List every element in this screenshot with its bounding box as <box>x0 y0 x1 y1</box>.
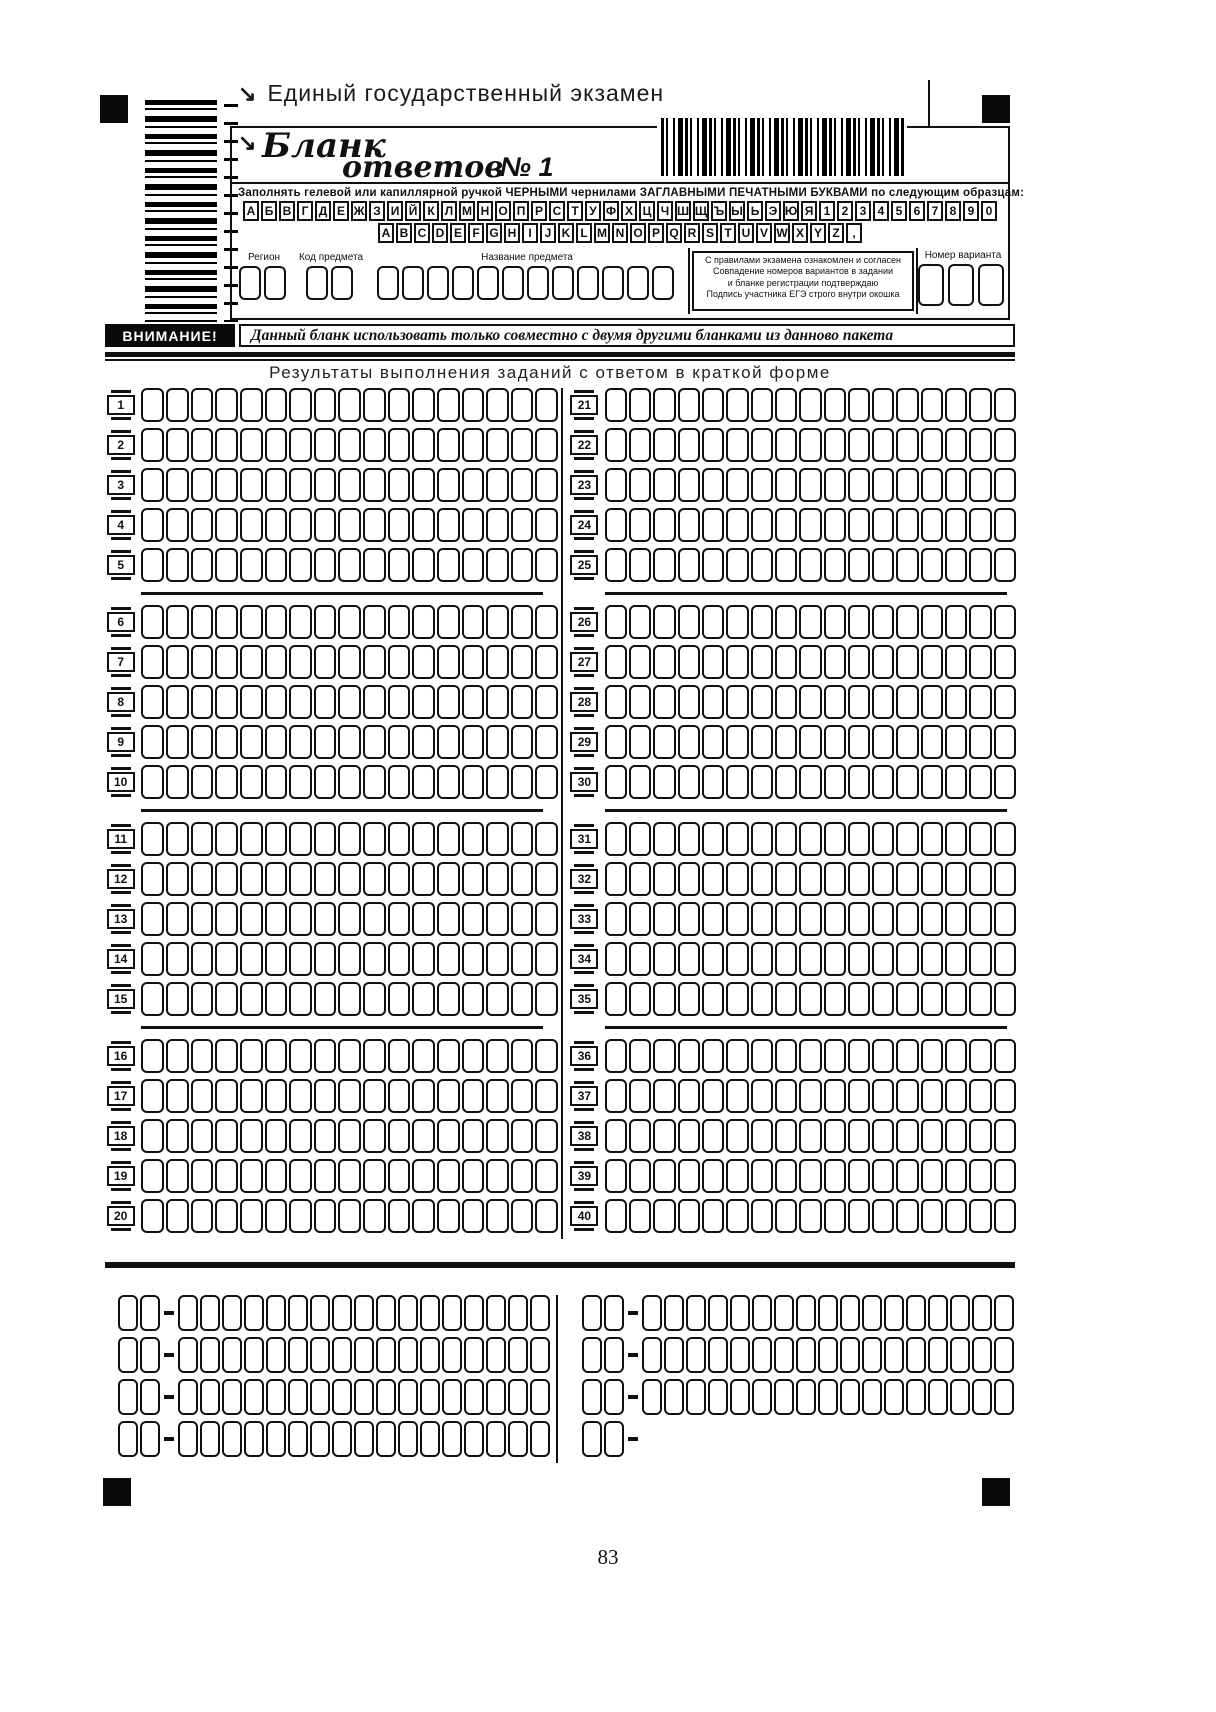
answer-cell[interactable] <box>678 765 700 799</box>
answer-cell[interactable] <box>535 1079 558 1113</box>
answer-cell[interactable] <box>872 765 894 799</box>
answer-cell[interactable] <box>265 645 288 679</box>
correction-answer-cell[interactable] <box>840 1295 860 1331</box>
answer-cell[interactable] <box>678 468 700 502</box>
answer-cell[interactable] <box>265 982 288 1016</box>
answer-cell[interactable] <box>412 765 435 799</box>
answer-cell[interactable] <box>872 725 894 759</box>
correction-answer-cell[interactable] <box>332 1337 352 1373</box>
answer-cell[interactable] <box>751 982 773 1016</box>
answer-cell[interactable] <box>799 605 821 639</box>
answer-cell[interactable] <box>775 765 797 799</box>
answer-cell[interactable] <box>215 902 238 936</box>
answer-cell[interactable] <box>314 508 337 542</box>
answer-cell[interactable] <box>605 508 627 542</box>
answer-cell[interactable] <box>824 1119 846 1153</box>
answer-cell[interactable] <box>605 468 627 502</box>
answer-cell[interactable] <box>511 605 534 639</box>
answer-cell[interactable] <box>363 388 386 422</box>
answer-cell[interactable] <box>678 548 700 582</box>
answer-cell[interactable] <box>605 862 627 896</box>
answer-cell[interactable] <box>605 822 627 856</box>
answer-cell[interactable] <box>678 1079 700 1113</box>
correction-answer-cell[interactable] <box>508 1337 528 1373</box>
correction-answer-cell[interactable] <box>464 1421 484 1457</box>
answer-cell[interactable] <box>872 548 894 582</box>
answer-cell[interactable] <box>265 1079 288 1113</box>
answer-cell[interactable] <box>462 822 485 856</box>
answer-cell[interactable] <box>265 468 288 502</box>
correction-answer-cell[interactable] <box>376 1421 396 1457</box>
answer-cell[interactable] <box>775 982 797 1016</box>
correction-answer-cell[interactable] <box>530 1421 550 1457</box>
answer-cell[interactable] <box>896 388 918 422</box>
answer-cell[interactable] <box>363 765 386 799</box>
answer-cell[interactable] <box>462 428 485 462</box>
answer-cell[interactable] <box>462 1079 485 1113</box>
answer-cell[interactable] <box>824 645 846 679</box>
correction-answer-cell[interactable] <box>508 1379 528 1415</box>
answer-cell[interactable] <box>969 508 991 542</box>
answer-cell[interactable] <box>462 685 485 719</box>
correction-answer-cell[interactable] <box>332 1421 352 1457</box>
answer-cell[interactable] <box>412 605 435 639</box>
answer-cell[interactable] <box>240 388 263 422</box>
answer-cell[interactable] <box>462 1159 485 1193</box>
answer-cell[interactable] <box>289 1199 312 1233</box>
answer-cell[interactable] <box>969 428 991 462</box>
answer-cell[interactable] <box>653 645 675 679</box>
correction-answer-cell[interactable] <box>222 1337 242 1373</box>
answer-cell[interactable] <box>702 765 724 799</box>
answer-cell[interactable] <box>848 1159 870 1193</box>
answer-cell[interactable] <box>872 1199 894 1233</box>
answer-cell[interactable] <box>486 902 509 936</box>
answer-cell[interactable] <box>265 388 288 422</box>
answer-cell[interactable] <box>921 902 943 936</box>
answer-cell[interactable] <box>629 1199 651 1233</box>
answer-cell[interactable] <box>265 605 288 639</box>
answer-cell[interactable] <box>799 765 821 799</box>
answer-cell[interactable] <box>896 822 918 856</box>
correction-answer-cell[interactable] <box>664 1295 684 1331</box>
answer-cell[interactable] <box>314 548 337 582</box>
answer-cell[interactable] <box>896 508 918 542</box>
correction-answer-cell[interactable] <box>288 1337 308 1373</box>
answer-cell[interactable] <box>848 1199 870 1233</box>
subject-name-cell[interactable] <box>577 266 599 300</box>
answer-cell[interactable] <box>535 725 558 759</box>
answer-cell[interactable] <box>653 548 675 582</box>
answer-cell[interactable] <box>511 1119 534 1153</box>
answer-cell[interactable] <box>751 685 773 719</box>
answer-cell[interactable] <box>314 468 337 502</box>
correction-answer-cell[interactable] <box>200 1379 220 1415</box>
answer-cell[interactable] <box>824 1079 846 1113</box>
answer-cell[interactable] <box>363 508 386 542</box>
answer-cell[interactable] <box>437 1199 460 1233</box>
answer-cell[interactable] <box>437 725 460 759</box>
answer-cell[interactable] <box>994 605 1016 639</box>
correction-answer-cell[interactable] <box>752 1337 772 1373</box>
answer-cell[interactable] <box>412 548 435 582</box>
answer-cell[interactable] <box>511 685 534 719</box>
answer-cell[interactable] <box>799 685 821 719</box>
answer-cell[interactable] <box>629 1159 651 1193</box>
answer-cell[interactable] <box>969 685 991 719</box>
correction-answer-cell[interactable] <box>310 1421 330 1457</box>
answer-cell[interactable] <box>289 428 312 462</box>
answer-cell[interactable] <box>702 725 724 759</box>
answer-cell[interactable] <box>191 725 214 759</box>
answer-cell[interactable] <box>215 645 238 679</box>
answer-cell[interactable] <box>363 725 386 759</box>
answer-cell[interactable] <box>437 1159 460 1193</box>
answer-cell[interactable] <box>896 765 918 799</box>
answer-cell[interactable] <box>726 605 748 639</box>
answer-cell[interactable] <box>678 388 700 422</box>
answer-cell[interactable] <box>896 942 918 976</box>
answer-cell[interactable] <box>289 822 312 856</box>
correction-answer-cell[interactable] <box>178 1337 198 1373</box>
answer-cell[interactable] <box>726 548 748 582</box>
answer-cell[interactable] <box>678 1039 700 1073</box>
answer-cell[interactable] <box>872 685 894 719</box>
answer-cell[interactable] <box>751 725 773 759</box>
answer-cell[interactable] <box>775 1119 797 1153</box>
answer-cell[interactable] <box>872 822 894 856</box>
correction-answer-cell[interactable] <box>796 1337 816 1373</box>
answer-cell[interactable] <box>412 1079 435 1113</box>
answer-cell[interactable] <box>726 765 748 799</box>
answer-cell[interactable] <box>437 1079 460 1113</box>
answer-cell[interactable] <box>437 685 460 719</box>
correction-answer-cell[interactable] <box>972 1295 992 1331</box>
answer-cell[interactable] <box>799 645 821 679</box>
correction-answer-cell[interactable] <box>928 1337 948 1373</box>
answer-cell[interactable] <box>629 428 651 462</box>
answer-cell[interactable] <box>166 822 189 856</box>
answer-cell[interactable] <box>486 862 509 896</box>
answer-cell[interactable] <box>141 765 164 799</box>
answer-cell[interactable] <box>191 1079 214 1113</box>
correction-answer-cell[interactable] <box>442 1337 462 1373</box>
answer-cell[interactable] <box>872 902 894 936</box>
answer-cell[interactable] <box>824 605 846 639</box>
answer-cell[interactable] <box>141 1079 164 1113</box>
answer-cell[interactable] <box>289 725 312 759</box>
answer-cell[interactable] <box>462 1039 485 1073</box>
answer-cell[interactable] <box>437 508 460 542</box>
answer-cell[interactable] <box>848 508 870 542</box>
answer-cell[interactable] <box>191 1159 214 1193</box>
answer-cell[interactable] <box>412 822 435 856</box>
correction-answer-cell[interactable] <box>642 1379 662 1415</box>
answer-cell[interactable] <box>486 942 509 976</box>
answer-cell[interactable] <box>191 902 214 936</box>
answer-cell[interactable] <box>511 902 534 936</box>
answer-cell[interactable] <box>678 645 700 679</box>
correction-answer-cell[interactable] <box>486 1295 506 1331</box>
correction-answer-cell[interactable] <box>994 1337 1014 1373</box>
correction-answer-cell[interactable] <box>730 1379 750 1415</box>
answer-cell[interactable] <box>702 468 724 502</box>
correction-answer-cell[interactable] <box>508 1295 528 1331</box>
answer-cell[interactable] <box>726 862 748 896</box>
answer-cell[interactable] <box>462 1199 485 1233</box>
correction-answer-cell[interactable] <box>310 1379 330 1415</box>
answer-cell[interactable] <box>265 548 288 582</box>
answer-cell[interactable] <box>678 1199 700 1233</box>
answer-cell[interactable] <box>994 982 1016 1016</box>
answer-cell[interactable] <box>363 862 386 896</box>
answer-cell[interactable] <box>437 1039 460 1073</box>
answer-cell[interactable] <box>535 982 558 1016</box>
answer-cell[interactable] <box>462 1119 485 1153</box>
answer-cell[interactable] <box>240 725 263 759</box>
correction-answer-cell[interactable] <box>464 1379 484 1415</box>
answer-cell[interactable] <box>921 942 943 976</box>
answer-cell[interactable] <box>215 468 238 502</box>
answer-cell[interactable] <box>215 765 238 799</box>
answer-cell[interactable] <box>605 765 627 799</box>
correction-answer-cell[interactable] <box>884 1379 904 1415</box>
answer-cell[interactable] <box>191 645 214 679</box>
answer-cell[interactable] <box>191 685 214 719</box>
answer-cell[interactable] <box>945 468 967 502</box>
answer-cell[interactable] <box>166 428 189 462</box>
answer-cell[interactable] <box>486 822 509 856</box>
answer-cell[interactable] <box>486 388 509 422</box>
answer-cell[interactable] <box>629 902 651 936</box>
answer-cell[interactable] <box>166 685 189 719</box>
answer-cell[interactable] <box>799 428 821 462</box>
answer-cell[interactable] <box>799 548 821 582</box>
answer-cell[interactable] <box>799 1039 821 1073</box>
correction-answer-cell[interactable] <box>266 1337 286 1373</box>
answer-cell[interactable] <box>848 468 870 502</box>
correction-answer-cell[interactable] <box>332 1379 352 1415</box>
answer-cell[interactable] <box>240 822 263 856</box>
variant-number-cell[interactable] <box>918 264 944 306</box>
correction-answer-cell[interactable] <box>840 1379 860 1415</box>
answer-cell[interactable] <box>775 468 797 502</box>
answer-cell[interactable] <box>535 1039 558 1073</box>
correction-answer-cell[interactable] <box>840 1337 860 1373</box>
answer-cell[interactable] <box>702 1199 724 1233</box>
answer-cell[interactable] <box>824 725 846 759</box>
answer-cell[interactable] <box>437 1119 460 1153</box>
answer-cell[interactable] <box>678 685 700 719</box>
answer-cell[interactable] <box>486 1079 509 1113</box>
answer-cell[interactable] <box>314 1159 337 1193</box>
answer-cell[interactable] <box>289 902 312 936</box>
answer-cell[interactable] <box>265 822 288 856</box>
correction-answer-cell[interactable] <box>730 1337 750 1373</box>
answer-cell[interactable] <box>141 1119 164 1153</box>
answer-cell[interactable] <box>535 942 558 976</box>
answer-cell[interactable] <box>191 605 214 639</box>
answer-cell[interactable] <box>848 942 870 976</box>
answer-cell[interactable] <box>462 902 485 936</box>
answer-cell[interactable] <box>653 1159 675 1193</box>
answer-cell[interactable] <box>969 388 991 422</box>
answer-cell[interactable] <box>653 1119 675 1153</box>
answer-cell[interactable] <box>872 468 894 502</box>
answer-cell[interactable] <box>969 1039 991 1073</box>
answer-cell[interactable] <box>462 388 485 422</box>
answer-cell[interactable] <box>462 982 485 1016</box>
answer-cell[interactable] <box>848 1039 870 1073</box>
answer-cell[interactable] <box>751 1119 773 1153</box>
answer-cell[interactable] <box>166 605 189 639</box>
answer-cell[interactable] <box>363 942 386 976</box>
answer-cell[interactable] <box>896 902 918 936</box>
answer-cell[interactable] <box>240 685 263 719</box>
answer-cell[interactable] <box>994 428 1016 462</box>
correction-answer-cell[interactable] <box>376 1379 396 1415</box>
answer-cell[interactable] <box>141 468 164 502</box>
answer-cell[interactable] <box>141 685 164 719</box>
variant-number-cell[interactable] <box>948 264 974 306</box>
answer-cell[interactable] <box>166 942 189 976</box>
subject-name-cell[interactable] <box>377 266 399 300</box>
answer-cell[interactable] <box>486 725 509 759</box>
answer-cell[interactable] <box>872 982 894 1016</box>
answer-cell[interactable] <box>412 1039 435 1073</box>
answer-cell[interactable] <box>653 822 675 856</box>
answer-cell[interactable] <box>726 1079 748 1113</box>
answer-cell[interactable] <box>141 388 164 422</box>
answer-cell[interactable] <box>412 982 435 1016</box>
answer-cell[interactable] <box>751 1079 773 1113</box>
answer-cell[interactable] <box>653 1039 675 1073</box>
correction-answer-cell[interactable] <box>862 1295 882 1331</box>
answer-cell[interactable] <box>215 1159 238 1193</box>
correction-answer-cell[interactable] <box>664 1379 684 1415</box>
answer-cell[interactable] <box>265 862 288 896</box>
correction-answer-cell[interactable] <box>288 1379 308 1415</box>
correction-task-number-cell[interactable] <box>140 1295 160 1331</box>
answer-cell[interactable] <box>240 645 263 679</box>
correction-answer-cell[interactable] <box>376 1337 396 1373</box>
answer-cell[interactable] <box>412 942 435 976</box>
answer-cell[interactable] <box>799 902 821 936</box>
answer-cell[interactable] <box>240 508 263 542</box>
answer-cell[interactable] <box>240 1199 263 1233</box>
subject-name-cell[interactable] <box>552 266 574 300</box>
answer-cell[interactable] <box>653 605 675 639</box>
answer-cell[interactable] <box>969 548 991 582</box>
answer-cell[interactable] <box>289 982 312 1016</box>
answer-cell[interactable] <box>921 982 943 1016</box>
answer-cell[interactable] <box>872 1159 894 1193</box>
answer-cell[interactable] <box>486 1039 509 1073</box>
answer-cell[interactable] <box>945 942 967 976</box>
answer-cell[interactable] <box>265 685 288 719</box>
correction-answer-cell[interactable] <box>354 1337 374 1373</box>
answer-cell[interactable] <box>799 982 821 1016</box>
answer-cell[interactable] <box>994 548 1016 582</box>
correction-answer-cell[interactable] <box>730 1295 750 1331</box>
answer-cell[interactable] <box>848 1079 870 1113</box>
answer-cell[interactable] <box>775 902 797 936</box>
answer-cell[interactable] <box>945 645 967 679</box>
subject-code-cell[interactable] <box>331 266 353 300</box>
answer-cell[interactable] <box>994 685 1016 719</box>
answer-cell[interactable] <box>388 862 411 896</box>
answer-cell[interactable] <box>363 1159 386 1193</box>
answer-cell[interactable] <box>896 1199 918 1233</box>
answer-cell[interactable] <box>141 1199 164 1233</box>
answer-cell[interactable] <box>166 1159 189 1193</box>
correction-answer-cell[interactable] <box>332 1295 352 1331</box>
answer-cell[interactable] <box>751 428 773 462</box>
answer-cell[interactable] <box>824 942 846 976</box>
correction-task-number-cell[interactable] <box>604 1379 624 1415</box>
answer-cell[interactable] <box>678 902 700 936</box>
answer-cell[interactable] <box>191 765 214 799</box>
answer-cell[interactable] <box>338 765 361 799</box>
answer-cell[interactable] <box>141 725 164 759</box>
answer-cell[interactable] <box>872 645 894 679</box>
correction-answer-cell[interactable] <box>420 1295 440 1331</box>
answer-cell[interactable] <box>702 1079 724 1113</box>
answer-cell[interactable] <box>678 822 700 856</box>
answer-cell[interactable] <box>969 468 991 502</box>
answer-cell[interactable] <box>511 982 534 1016</box>
answer-cell[interactable] <box>486 765 509 799</box>
answer-cell[interactable] <box>388 725 411 759</box>
answer-cell[interactable] <box>314 942 337 976</box>
correction-task-number-cell[interactable] <box>118 1295 138 1331</box>
answer-cell[interactable] <box>775 942 797 976</box>
answer-cell[interactable] <box>799 942 821 976</box>
answer-cell[interactable] <box>535 428 558 462</box>
correction-answer-cell[interactable] <box>178 1421 198 1457</box>
answer-cell[interactable] <box>921 725 943 759</box>
answer-cell[interactable] <box>629 725 651 759</box>
answer-cell[interactable] <box>872 1039 894 1073</box>
correction-answer-cell[interactable] <box>288 1421 308 1457</box>
answer-cell[interactable] <box>945 508 967 542</box>
answer-cell[interactable] <box>824 468 846 502</box>
answer-cell[interactable] <box>605 605 627 639</box>
answer-cell[interactable] <box>289 862 312 896</box>
answer-cell[interactable] <box>702 1119 724 1153</box>
answer-cell[interactable] <box>994 468 1016 502</box>
answer-cell[interactable] <box>653 428 675 462</box>
answer-cell[interactable] <box>363 1119 386 1153</box>
answer-cell[interactable] <box>799 822 821 856</box>
answer-cell[interactable] <box>605 1039 627 1073</box>
correction-answer-cell[interactable] <box>508 1421 528 1457</box>
answer-cell[interactable] <box>289 468 312 502</box>
answer-cell[interactable] <box>363 428 386 462</box>
answer-cell[interactable] <box>702 822 724 856</box>
answer-cell[interactable] <box>141 902 164 936</box>
correction-answer-cell[interactable] <box>906 1337 926 1373</box>
correction-answer-cell[interactable] <box>686 1379 706 1415</box>
correction-answer-cell[interactable] <box>774 1379 794 1415</box>
correction-answer-cell[interactable] <box>818 1379 838 1415</box>
answer-cell[interactable] <box>629 1079 651 1113</box>
answer-cell[interactable] <box>363 1039 386 1073</box>
answer-cell[interactable] <box>486 1119 509 1153</box>
answer-cell[interactable] <box>629 1039 651 1073</box>
correction-task-number-cell[interactable] <box>582 1295 602 1331</box>
answer-cell[interactable] <box>240 1039 263 1073</box>
